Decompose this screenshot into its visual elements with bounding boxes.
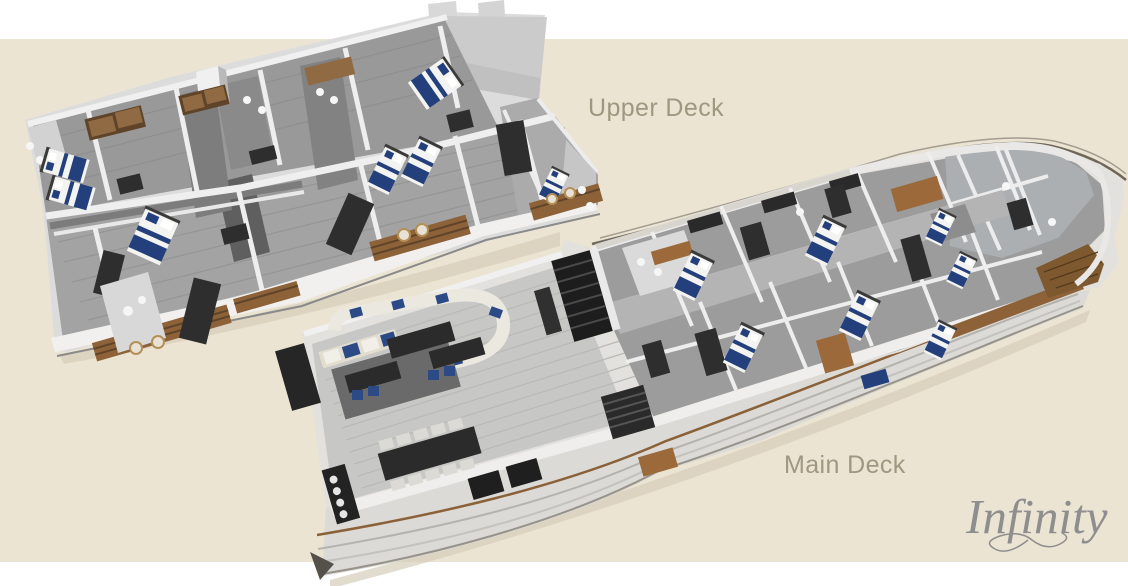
svg-text:Infinity: Infinity: [965, 489, 1108, 544]
svg-text:Main Deck: Main Deck: [784, 451, 906, 479]
svg-text:Upper Deck: Upper Deck: [588, 94, 724, 122]
